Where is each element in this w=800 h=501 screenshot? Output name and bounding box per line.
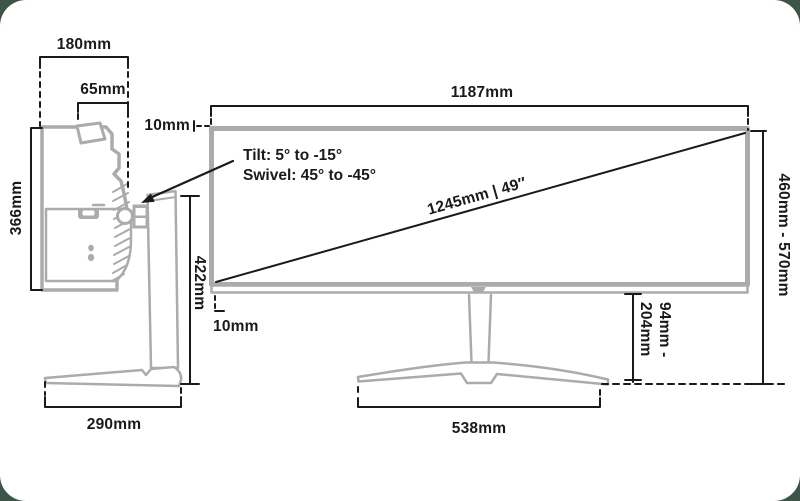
- dim-460-570-bracket: [751, 131, 766, 384]
- front-stand-base: [358, 363, 608, 385]
- front-screen-width-label: 1187mm: [432, 83, 532, 103]
- front-stand-clearance-line1: 94mm -: [655, 302, 674, 357]
- side-top-width-label: 180mm: [34, 35, 134, 55]
- side-keyhole-top: [88, 245, 94, 251]
- dim-1187-bracket: [211, 106, 748, 116]
- side-screen-height-label: 366mm: [7, 168, 27, 248]
- front-stand-neck: [469, 295, 491, 363]
- dim-290-bracket: [45, 397, 181, 407]
- front-top-bezel-gap-label: 10mm: [92, 116, 190, 136]
- side-upper-depth-label: 65mm: [53, 80, 153, 100]
- dim-538-extensions: [358, 387, 600, 396]
- side-stand-base: [45, 367, 181, 386]
- side-mount-hole-bottom: [136, 218, 146, 226]
- front-stand-clearance-label: 94mm - 204mm: [636, 302, 674, 372]
- side-keyhole-bottom: [88, 254, 94, 261]
- tilt-range-label: Tilt: 5° to -15°: [243, 146, 376, 166]
- tilt-swivel-annotation: Tilt: 5° to -15° Swivel: 45° to -45°: [243, 146, 376, 186]
- side-door-tab-slot: [83, 211, 95, 216]
- page-background: { "colors": { "background": "#3F5449", "…: [0, 0, 800, 501]
- dim-180-bracket: [40, 57, 128, 68]
- side-stand-neck: [148, 191, 179, 368]
- side-view-drawing: [42, 123, 181, 386]
- front-base-width-label: 538mm: [429, 419, 529, 439]
- front-stand-clearance-line2: 204mm: [636, 302, 655, 356]
- side-mount-hole-top: [136, 208, 146, 216]
- front-bottom-bezel-gap-label: 10mm: [213, 317, 313, 337]
- side-base-depth-label: 290mm: [64, 415, 164, 435]
- swivel-range-label: Swivel: 45° to -45°: [243, 166, 376, 186]
- dim-65-bracket: [78, 103, 128, 112]
- side-stand-height-label: 422mm: [189, 243, 209, 323]
- front-height-range-label: 460mm - 570mm: [773, 160, 793, 310]
- dim-538-bracket: [358, 398, 600, 407]
- side-hinge-pivot: [118, 209, 133, 224]
